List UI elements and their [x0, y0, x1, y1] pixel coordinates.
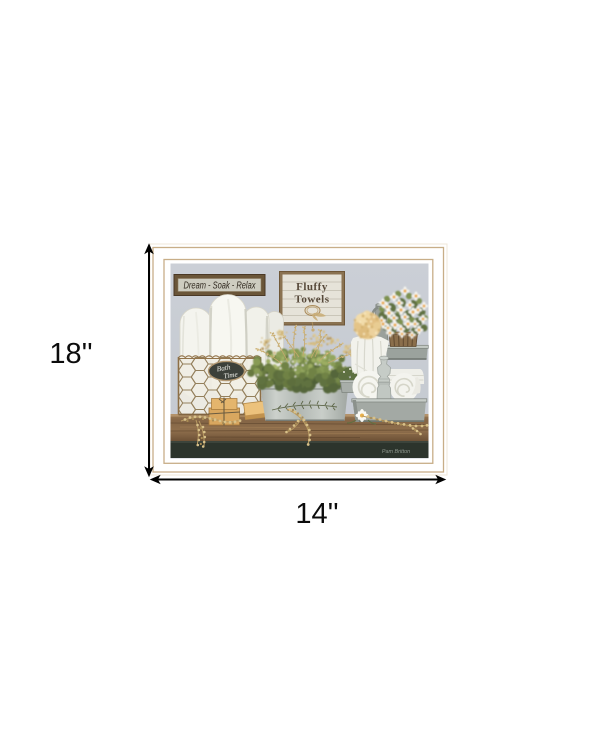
svg-text:Towels: Towels [295, 294, 330, 306]
svg-text:Pam Britton: Pam Britton [382, 449, 410, 455]
svg-text:14'': 14'' [295, 498, 338, 530]
svg-text:Fluffy: Fluffy [296, 281, 328, 293]
svg-text:18'': 18'' [49, 338, 92, 370]
svg-text:Dream - Soak - Relax: Dream - Soak - Relax [184, 281, 257, 292]
